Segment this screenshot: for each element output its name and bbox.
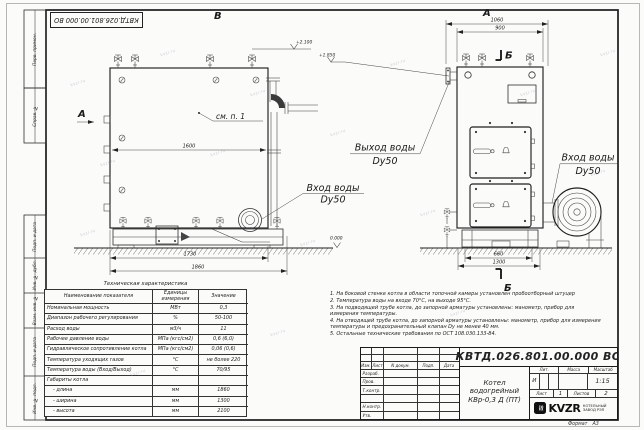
view-letter-a: А (482, 8, 491, 19)
tech-header-value: Значение (199, 290, 248, 303)
tech-cell (153, 375, 199, 385)
role-row: Пров. (361, 378, 459, 386)
outlet-label-line2: Dy50 (372, 156, 397, 167)
margin-label-perv-primen: Перв. примен. (24, 10, 46, 88)
inlet-label-line1: Вход воды (561, 153, 615, 164)
note-2: 2. Температура воды на входе 70°С, на вы… (330, 298, 604, 304)
tech-cell: Температура воды (Вход/Выход) (45, 365, 153, 375)
ground-hatch-right (420, 249, 612, 255)
elevation-outlet: +1.850 (319, 53, 335, 59)
tech-cell: мм (153, 385, 199, 395)
tech-cell: мм (153, 406, 199, 416)
drawing-designation: КВТД.026.801.00.000 ВО (459, 348, 617, 367)
dim-1860: 1860 (192, 265, 205, 271)
tech-cell: 1860 (199, 385, 248, 395)
tech-table-title: Техническая характеристика (44, 281, 247, 287)
tech-cell: - ширина (45, 396, 153, 406)
revision-row (361, 348, 459, 355)
top-safety-valves (115, 55, 256, 68)
callout-see-note-1: см. п. 1 (216, 112, 245, 121)
tech-cell: не более 220 (199, 354, 248, 364)
elevation-ground: 0.000 (330, 236, 343, 242)
role-row: Н.контр. (361, 403, 459, 411)
section-letter-top: Б (505, 51, 513, 62)
door-latch (503, 201, 509, 207)
tech-cell: 0,6 (6,0) (199, 334, 248, 344)
lit-mass-scale-header: Лит. Масса Масштаб (530, 367, 617, 374)
door-handle (474, 203, 491, 208)
dim-1730: 1730 (184, 252, 197, 258)
outlet-piping (266, 78, 318, 226)
tech-cell: МПа (кгс/см2) (153, 344, 199, 354)
dim-660: 660 (494, 252, 504, 258)
lower-furnace-door (470, 180, 535, 227)
tech-cell: мм (153, 396, 199, 406)
lit-mass-scale-values: И 1:15 (530, 374, 617, 391)
revision-row (361, 355, 459, 362)
tech-table-grid: Наименование показателя Единицы измерени… (44, 289, 247, 417)
note-1: 1. На боковой стенке котла в области топ… (330, 291, 604, 297)
tech-cell: МВт (153, 303, 199, 313)
role-row: Разраб. (361, 370, 459, 378)
dim-1060: 1060 (491, 18, 504, 24)
tech-characteristics-table: Техническая характеристика Наименование … (44, 281, 247, 417)
title-block-signature-grid: Изм. Лист N докум. Подп. Дата Разраб. Пр… (361, 348, 459, 418)
control-panel (508, 85, 536, 103)
elevation-top: +2.100 (296, 40, 312, 46)
dim-1300: 1300 (493, 260, 506, 266)
tech-header-name: Наименование показателя (45, 290, 153, 303)
tech-cell: 11 (199, 324, 248, 334)
ground-hatch-left (74, 249, 333, 255)
tech-cell: МПа (кгс/см2) (153, 334, 199, 344)
boiler-side-view (74, 55, 333, 255)
tech-header-units: Единицы измерения (153, 290, 199, 303)
margin-label-inv-podl: Инв. № подл. (24, 376, 46, 420)
base-frame (462, 230, 538, 247)
tech-cell: 2100 (199, 406, 248, 416)
tech-cell: Рабочее давление воды (45, 334, 153, 344)
tech-cell: 50-100 (199, 313, 248, 323)
dim-900: 900 (495, 26, 505, 32)
door-latch (503, 147, 509, 153)
dim-1600: 1600 (183, 144, 196, 150)
base-frame (113, 226, 283, 248)
company-name: КОТЕЛЬНЫЙ ЗАВОД РЭП (583, 404, 607, 412)
margin-label-podp-data-1: Подп. и дата (24, 215, 46, 258)
tech-cell: - длина (45, 385, 153, 395)
corner-stamp: КВТД.026.801.00.000 ВО (50, 12, 143, 28)
inlet-label-line2: Dy50 (320, 195, 345, 206)
lit-value: И (530, 374, 540, 390)
view-letter-a-arrow: А (77, 109, 86, 120)
mass-value (559, 374, 588, 390)
tech-cell: Габариты котла (45, 375, 153, 385)
signature-header-row: Изм. Лист N докум. Подп. Дата (361, 362, 459, 370)
tech-cell: 1300 (199, 396, 248, 406)
tech-cell (199, 375, 248, 385)
drawing-sheet: 1600 1730 1860 +2.100 +1.850 0.000 В А с… (0, 0, 644, 430)
blower-fan (543, 188, 604, 248)
inlet-label-line2: Dy50 (575, 166, 600, 177)
company-logo-area: ≋ KVZR КОТЕЛЬНЫЙ ЗАВОД РЭП (530, 398, 617, 418)
tech-cell: Диапазон рабочего регулирования (45, 313, 153, 323)
door-handle (474, 149, 491, 154)
corner-stamp-text: КВТД.026.801.00.000 ВО (54, 16, 139, 24)
tech-cell: °С (153, 354, 199, 364)
sheet-row: Лист 1 Листов 2 (530, 390, 617, 398)
margin-label-sprav: Справ. № (24, 88, 46, 143)
title-block: КВТД.026.801.00.000 ВО Изм. Лист N докум… (360, 347, 618, 420)
tech-cell: Расход воды (45, 324, 153, 334)
margin-label-vzam-inv: Взам. инв. № (24, 293, 46, 328)
tech-cell: 0,06 (0,6) (199, 344, 248, 354)
kvzr-logo-text: KVZR (549, 402, 581, 415)
tech-cell: Гидравлическое сопротивление котла (45, 344, 153, 354)
margin-label-podp-data-2: Подп. и дата (24, 328, 46, 376)
scale-value: 1:15 (588, 374, 617, 390)
role-row: Утв. (361, 412, 459, 420)
format-label: Формат А3 (568, 422, 618, 427)
bottom-drain-valves (120, 217, 280, 229)
tech-cell: Температура уходящих газов (45, 354, 153, 364)
role-row (361, 395, 459, 403)
product-name: Котел водогрейный КВр-0,3 Д (ПТ) (459, 367, 529, 419)
title-block-right: Лит. Масса Масштаб И 1:15 Лист 1 Листов … (529, 367, 617, 419)
tech-cell: % (153, 313, 199, 323)
tech-cell: °С (153, 365, 199, 375)
tech-cell: м3/ч (153, 324, 199, 334)
note-5: 5. Остальные технические требования по О… (330, 331, 604, 337)
upper-furnace-door (470, 122, 535, 178)
technical-notes: 1. На боковой стенке котла в области топ… (330, 291, 604, 338)
tech-cell: 70/95 (199, 365, 248, 375)
view-letter-b: В (214, 11, 222, 22)
role-row: Т.контр. (361, 386, 459, 394)
tech-cell: - высота (45, 406, 153, 416)
side-drain-valves (444, 209, 457, 248)
inlet-label-line1: Вход воды (306, 183, 360, 194)
outlet-label-line1: Выход воды (355, 143, 416, 154)
tech-cell: Номинальная мощность (45, 303, 153, 313)
kvzr-logo-icon: ≋ (534, 402, 546, 414)
tech-cell: 0,3 (199, 303, 248, 313)
note-3: 3. На подводящей трубе котла, до запорно… (330, 305, 604, 318)
note-4: 4. На отводящей трубе котла, до запорной… (330, 318, 604, 331)
margin-label-inv-dubl: Инв. № дубл. (24, 258, 46, 293)
